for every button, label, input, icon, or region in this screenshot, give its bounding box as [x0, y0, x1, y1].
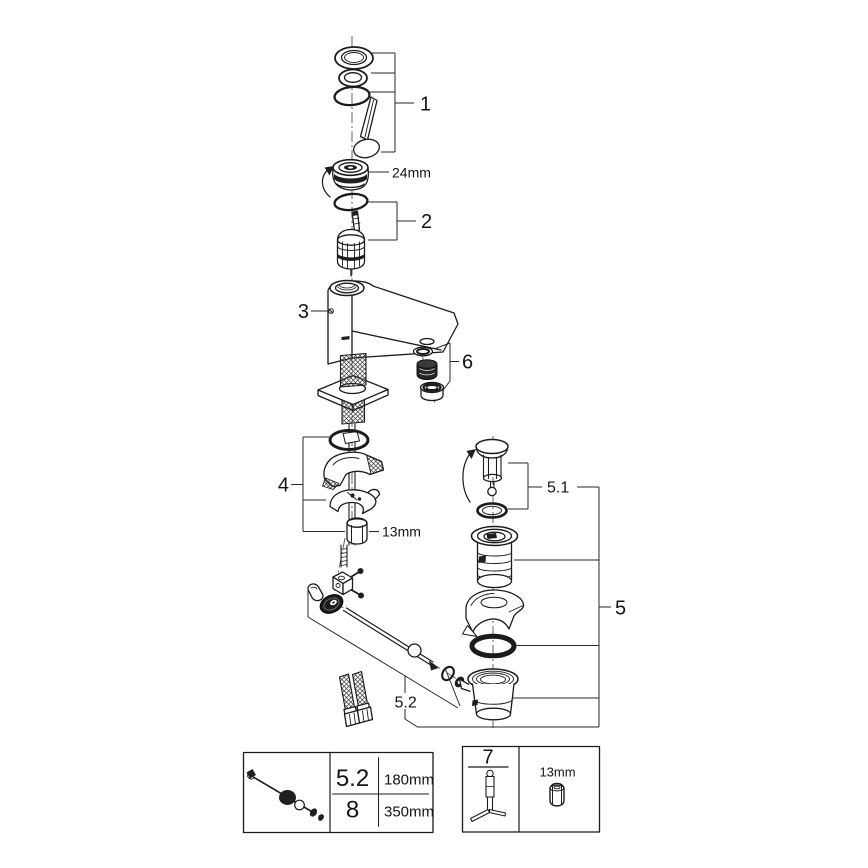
- handle-parts-group: 1: [334, 47, 431, 160]
- aerator-insert: [417, 360, 437, 380]
- drain-flange: [472, 527, 518, 588]
- handle-cap-ring: [335, 47, 373, 69]
- cap-24mm: [333, 160, 369, 190]
- plug-o-ring: [478, 504, 507, 518]
- part-2-label: 2: [421, 211, 432, 233]
- spec-value-0: 180mm: [384, 772, 434, 789]
- spec-ref-1: 8: [346, 797, 359, 824]
- faucet-body-group: 3: [298, 281, 458, 365]
- aerator-washer: [414, 347, 433, 356]
- page: 1 24mm: [0, 0, 868, 868]
- part-5-bracket: [599, 487, 611, 727]
- cartridge-o-ring: [334, 192, 368, 211]
- cap-24mm-group: 24mm: [322, 160, 431, 197]
- shank-threads-upper: [341, 354, 367, 388]
- part-51-bracket: [508, 463, 542, 509]
- cartridge-group: 2: [334, 192, 432, 276]
- lever-handle: [352, 97, 381, 160]
- part-6-label: 6: [462, 352, 473, 374]
- faucet-exploded-parts-diagram: 1 24mm: [0, 0, 868, 868]
- ferrule: [308, 584, 323, 601]
- threaded-stud: [341, 545, 347, 567]
- clamp-screw-upper: [350, 568, 364, 578]
- cap-size-label: 24mm: [392, 165, 431, 181]
- nut-size-label: 13mm: [382, 524, 421, 540]
- tool-size-label: 13mm: [539, 765, 575, 780]
- body-set-screw: [329, 309, 334, 314]
- supply-hoses-group: [340, 672, 373, 727]
- rotation-arrow-icon: [463, 449, 476, 502]
- pop-up-rod: [344, 608, 439, 671]
- part-5-label: 5: [615, 598, 626, 620]
- spec-value-1: 350mm: [384, 804, 434, 821]
- part-51-label: 5.1: [547, 480, 569, 497]
- stabilizer-plate-upper: [323, 452, 384, 489]
- handle-ring: [339, 70, 367, 87]
- cartridge: [338, 211, 365, 277]
- drain-assembly-group: 5.1: [460, 440, 627, 728]
- nut-icon: [550, 784, 564, 807]
- clamp-screw-lower: [352, 590, 365, 599]
- part-1-label: 1: [420, 94, 431, 116]
- tool-ref-label: 7: [482, 747, 493, 769]
- aerator-housing: [421, 383, 444, 401]
- spec-rod-thumbnail: [247, 769, 326, 822]
- rod-clamp: [333, 572, 353, 595]
- rod-tip: [429, 661, 439, 671]
- faucet-body: [328, 281, 458, 365]
- spec-ref-0: 5.2: [336, 765, 369, 792]
- mounting-group: 13mm 4: [278, 424, 421, 545]
- part-3-label: 3: [298, 301, 309, 323]
- tool-box: 7 13mm: [463, 747, 600, 833]
- rod-ball: [408, 644, 421, 657]
- part-52-label: 5.2: [395, 695, 417, 712]
- part-2-bracket: [368, 202, 416, 240]
- socket-tool: [471, 770, 506, 821]
- drain-plug: [476, 440, 508, 496]
- drain-body: [460, 669, 519, 720]
- spec-box: 5.2 180mm 8 350mm: [244, 753, 435, 833]
- part-4-label: 4: [278, 475, 289, 497]
- mounting-nut: [347, 518, 367, 544]
